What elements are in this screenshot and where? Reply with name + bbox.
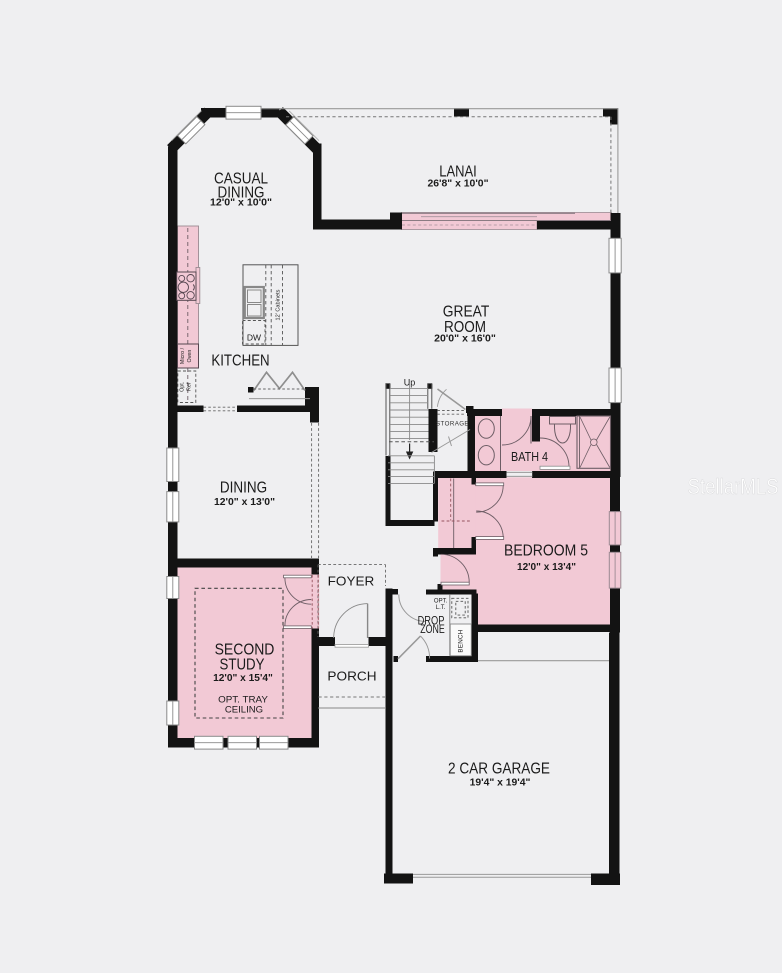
svg-text:FOYER: FOYER: [328, 574, 375, 589]
svg-text:12'0" x 13'0": 12'0" x 13'0": [214, 496, 275, 508]
svg-text:Oven: Oven: [187, 350, 193, 363]
svg-text:12' Cabinets: 12' Cabinets: [276, 289, 282, 320]
svg-text:ZONE: ZONE: [420, 622, 445, 636]
svg-text:12'0" x 10'0": 12'0" x 10'0": [210, 197, 272, 209]
svg-text:L.T.: L.T.: [436, 605, 446, 611]
svg-text:Opt.: Opt.: [180, 382, 186, 392]
svg-text:12'0" x 13'4": 12'0" x 13'4": [517, 561, 576, 573]
svg-text:26'8" x 10'0": 26'8" x 10'0": [428, 178, 489, 190]
svg-text:BEDROOM 5: BEDROOM 5: [504, 543, 588, 560]
svg-text:CEILING: CEILING: [225, 705, 263, 716]
svg-text:STORAGE: STORAGE: [436, 421, 469, 428]
svg-text:2 CAR GARAGE: 2 CAR GARAGE: [448, 761, 550, 778]
svg-text:OPT.: OPT.: [434, 598, 448, 604]
svg-text:BENCH: BENCH: [458, 629, 465, 652]
svg-text:12'0" x 15'4": 12'0" x 15'4": [213, 672, 273, 684]
svg-text:20'0" x 16'0": 20'0" x 16'0": [434, 333, 496, 345]
svg-text:PORCH: PORCH: [327, 669, 376, 684]
svg-text:Up: Up: [404, 378, 416, 388]
svg-text:GREAT: GREAT: [443, 304, 490, 321]
svg-text:Ref: Ref: [187, 382, 193, 391]
svg-text:KITCHEN: KITCHEN: [211, 353, 269, 370]
svg-text:StellarMLS: StellarMLS: [688, 474, 779, 499]
svg-text:DINING: DINING: [220, 480, 267, 497]
svg-text:DW: DW: [247, 333, 261, 343]
svg-text:STUDY: STUDY: [220, 657, 265, 674]
svg-text:Micro /: Micro /: [180, 347, 186, 364]
svg-text:BATH 4: BATH 4: [511, 449, 548, 464]
svg-text:19'4" x 19'4": 19'4" x 19'4": [470, 777, 531, 789]
